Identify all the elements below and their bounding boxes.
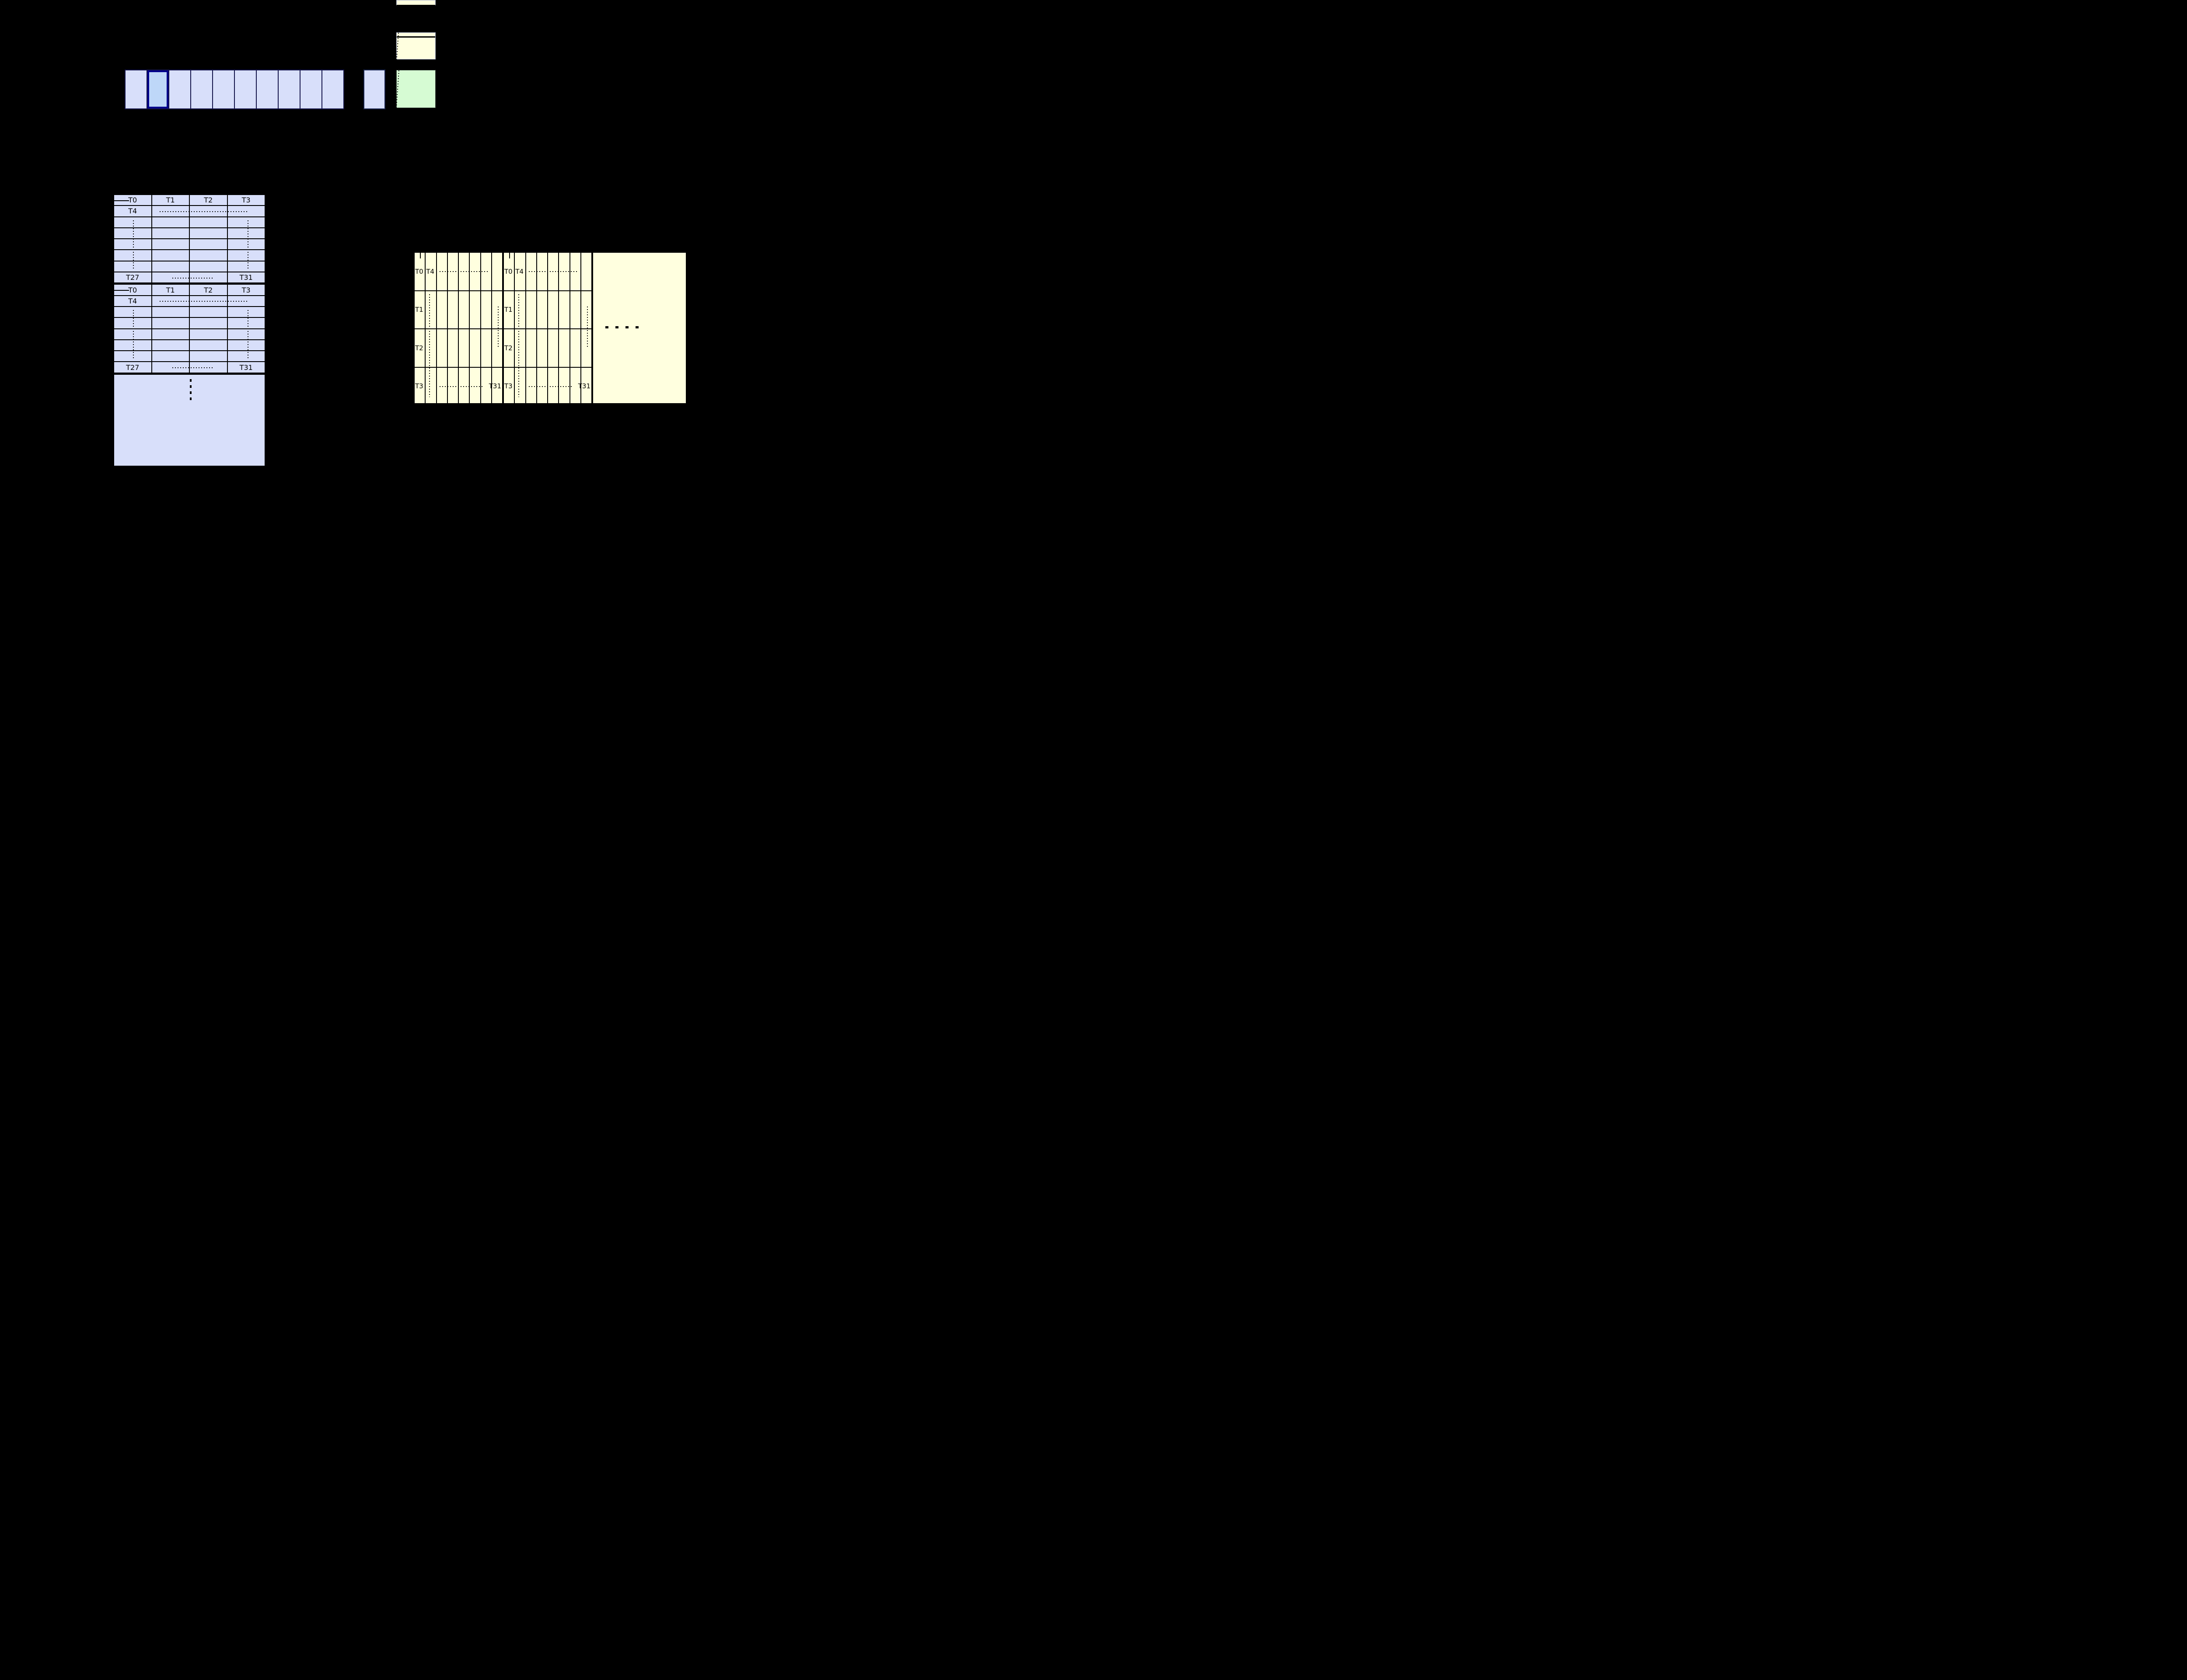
thread-column-block: T0 T4 T1 T2 T3 T31 [504,253,593,403]
highlighted-memory-cell [147,70,169,108]
memory-cell [191,70,213,108]
row-pointer-line [114,200,129,201]
memory-cell [279,70,300,108]
ellipsis-dotted-line [172,367,214,368]
table-row [114,239,265,250]
table-row: T2 [415,329,502,368]
ellipsis-dotted-line [160,211,248,212]
memory-cell [126,70,147,108]
horizontal-ellipsis-dot [615,326,618,328]
memory-cell [322,70,343,108]
memory-cell [300,70,322,108]
cell-t1: T1 [152,195,190,205]
ellipsis-dotted-line [133,220,134,270]
zoom-guide-dotted-line [396,70,399,108]
zoom-box-header-strip [397,33,435,38]
memory-cell [169,70,191,108]
table-row: T2 [504,329,591,368]
horizontal-ellipsis-dot [636,326,639,328]
cell-t4: T4 [114,206,152,216]
ellipsis-dotted-line [160,301,248,302]
table-row [114,250,265,261]
cell-t2: T2 [190,285,228,295]
zoom-box-green [396,70,436,108]
ellipsis-dotted-line [529,386,573,387]
table-row-header: T0 T1 T2 T3 [114,285,265,296]
ellipsis-dotted-line [440,271,488,272]
cell-t2: T2 [504,329,515,367]
cell-t31: T31 [489,367,501,405]
table-row-header: T0 T1 T2 T3 [114,195,265,206]
thread-block: T0 T1 T2 T3 T4 [114,195,265,285]
cell-t31: T31 [578,367,590,405]
column-pointer-line [509,253,510,258]
cell-t3: T3 [228,195,265,205]
zoom-box-yellow-top [396,0,436,6]
thread-block: T0 T1 T2 T3 T4 [114,285,265,374]
table-continuation-area [593,253,686,403]
table-row [114,307,265,318]
cell-t1: T1 [415,291,426,329]
table-row [114,261,265,272]
horizontal-ellipsis-dot [625,326,629,328]
cell-t27: T27 [114,272,152,282]
cell-t1: T1 [504,291,515,329]
vertical-ellipsis-dot [190,385,192,388]
thread-column-table: T0 T4 T1 T2 T3 T31 [413,251,686,404]
table-row [114,318,265,329]
memory-word-row [125,70,344,109]
memory-cell [235,70,257,108]
ellipsis-dotted-line [587,307,588,348]
diagram-canvas: T0 T1 T2 T3 T4 [0,0,686,466]
ellipsis-dotted-line [529,271,577,272]
table-row: T1 [504,291,591,330]
memory-cell [213,70,235,108]
ellipsis-dotted-line [133,310,134,360]
cell-t31: T31 [228,272,265,282]
horizontal-ellipsis-dot [605,326,608,328]
ellipsis-dotted-line [248,310,248,360]
cell-t4: T4 [114,296,152,306]
cell-t4: T4 [515,253,526,290]
ellipsis-dotted-line [248,220,248,270]
table-row [114,351,265,362]
cell-t1: T1 [152,285,190,295]
vertical-ellipsis-dot [190,397,192,400]
cell-t3: T3 [228,285,265,295]
cell-t4: T4 [426,253,437,290]
table-row [114,217,265,228]
thread-bank-table: T0 T1 T2 T3 T4 [113,194,266,464]
thread-column-block: T0 T4 T1 T2 T3 T31 [415,253,504,403]
zoom-box-yellow [396,32,436,59]
cell-t3: T3 [415,368,426,405]
ellipsis-dotted-line [440,386,483,387]
table-row [114,228,265,239]
cell-t2: T2 [190,195,228,205]
vertical-ellipsis-dot [190,379,192,382]
row-pointer-line [114,290,129,291]
memory-cell [257,70,279,108]
memory-segment-box [363,70,385,109]
table-row [114,340,265,351]
ellipsis-dotted-line [429,294,430,397]
cell-t27: T27 [114,362,152,372]
cell-t31: T31 [228,362,265,372]
cell-t3: T3 [504,368,515,405]
ellipsis-dotted-line [498,307,499,348]
table-continuation-area [114,375,265,466]
table-row [114,329,265,340]
column-pointer-line [420,253,421,258]
ellipsis-dotted-line [518,294,519,397]
cell-t2: T2 [415,329,426,367]
ellipsis-dotted-line [172,278,214,279]
table-row: T1 [415,291,502,330]
vertical-ellipsis-dot [190,391,192,394]
